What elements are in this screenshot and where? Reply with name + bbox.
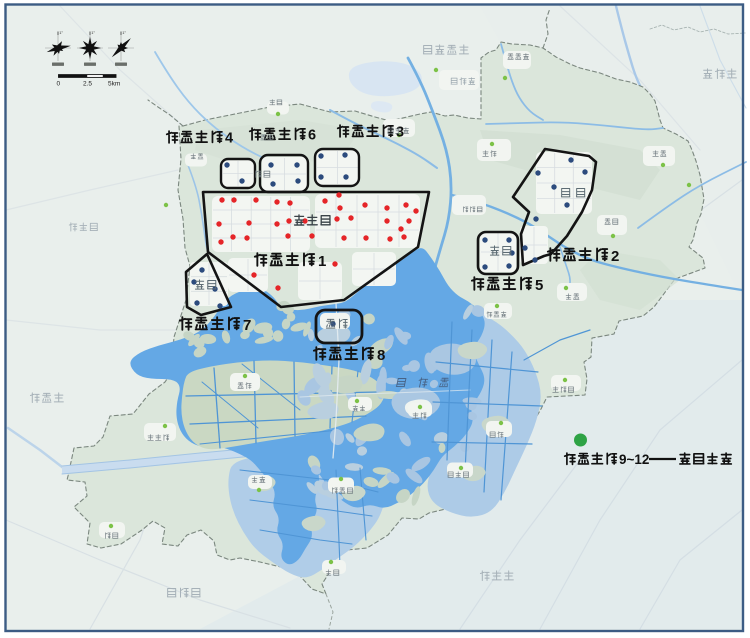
svg-text:4: 4	[225, 131, 233, 147]
svg-text:2.5: 2.5	[83, 81, 92, 88]
svg-text:5: 5	[535, 277, 543, 294]
svg-text:1°: 1°	[59, 30, 63, 35]
svg-text:7: 7	[243, 317, 251, 334]
svg-text:5km: 5km	[108, 81, 120, 88]
svg-text:3: 3	[396, 125, 404, 141]
svg-text:2: 2	[611, 248, 619, 265]
svg-text:9~12: 9~12	[619, 452, 649, 467]
svg-text:1: 1	[318, 253, 326, 270]
svg-text:1°: 1°	[122, 30, 126, 35]
svg-text:6: 6	[308, 128, 316, 144]
svg-text:0: 0	[57, 81, 61, 88]
svg-text:8: 8	[377, 347, 385, 364]
svg-text:1°: 1°	[91, 30, 95, 35]
